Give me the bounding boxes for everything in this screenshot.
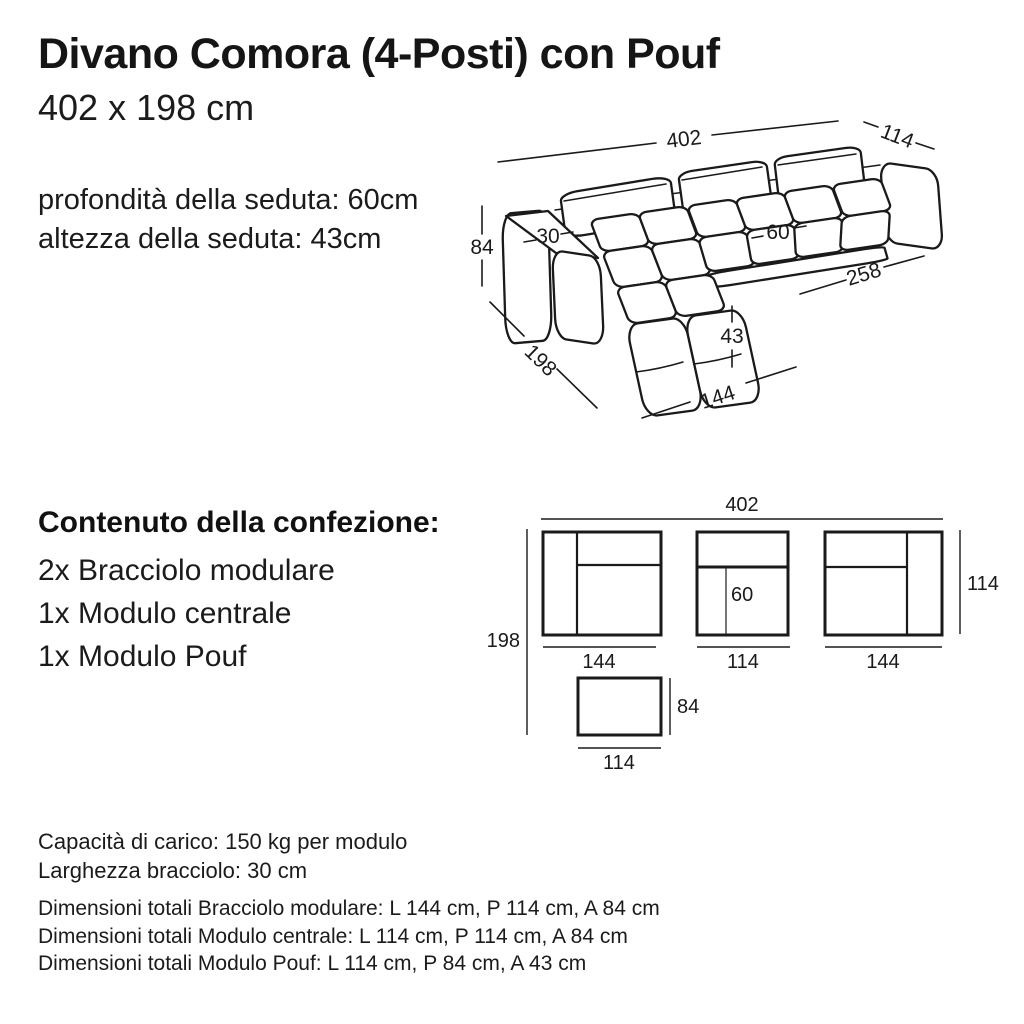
tv-total-depth-label: 198 xyxy=(487,630,520,652)
sofa-perspective-diagram: 402 114 84 30 60 258 198 43 144 xyxy=(460,110,1024,430)
tv-pouf-depth-label: 84 xyxy=(677,696,699,718)
package-item: 2x Bracciolo modulare xyxy=(38,549,440,592)
pouf-top-view: 84 114 xyxy=(578,678,699,774)
dim-seat-depth-label: 60 xyxy=(766,221,789,244)
load-capacity-text: Capacità di carico: 150 kg per modulo xyxy=(38,827,407,856)
dimension-notes: Dimensioni totali Bracciolo modulare: L … xyxy=(38,895,660,978)
tv-seat-depth-label: 60 xyxy=(731,584,753,606)
tv-left-module-width-label: 144 xyxy=(582,651,615,673)
armrest-width-text: Larghezza bracciolo: 30 cm xyxy=(38,856,407,885)
tv-total-width-label: 402 xyxy=(725,494,758,516)
page-title: Divano Comora (4-Posti) con Pouf xyxy=(38,30,720,79)
seat-depth-text: profondità della seduta: 60cm xyxy=(38,181,418,220)
package-heading: Contenuto della confezione: xyxy=(38,501,440,544)
dimension-note: Dimensioni totali Bracciolo modulare: L … xyxy=(38,895,660,923)
dimension-note: Dimensioni totali Modulo Pouf: L 114 cm,… xyxy=(38,950,660,978)
dim-total-depth-label: 114 xyxy=(877,120,917,154)
tv-center-module-width-label: 114 xyxy=(727,651,759,673)
dimension-note: Dimensioni totali Modulo centrale: L 114… xyxy=(38,923,660,951)
package-item: 1x Modulo Pouf xyxy=(38,635,440,678)
seat-height-text: altezza della seduta: 43cm xyxy=(38,220,418,259)
dim-total-width-label: 402 xyxy=(665,126,703,153)
dim-height-label: 84 xyxy=(470,236,494,259)
left-armrest-front xyxy=(552,250,604,345)
center-module-top-view: 60 114 xyxy=(697,532,790,673)
package-contents: Contenuto della confezione: 2x Bracciolo… xyxy=(38,501,440,678)
tv-module-depth-label: 114 xyxy=(967,573,999,595)
tv-right-module-width-label: 144 xyxy=(866,651,899,673)
overall-size-subtitle: 402 x 198 cm xyxy=(38,87,254,129)
right-module-top-view: 144 114 xyxy=(825,530,999,673)
dim-side-depth-label: 198 xyxy=(520,340,561,381)
package-item: 1x Modulo centrale xyxy=(38,592,440,635)
modules-top-view-diagram: 402 198 144 60 114 144 114 xyxy=(490,490,1024,780)
left-module-top-view: 144 xyxy=(543,532,661,673)
dim-pouf-height-label: 43 xyxy=(720,325,743,348)
product-spec-page: Divano Comora (4-Posti) con Pouf 402 x 1… xyxy=(0,0,1024,1024)
capacity-specs: Capacità di carico: 150 kg per modulo La… xyxy=(38,827,407,885)
dim-armrest-label: 30 xyxy=(536,225,559,248)
seat-specs: profondità della seduta: 60cm altezza de… xyxy=(38,181,418,259)
tv-pouf-width-label: 114 xyxy=(603,752,635,774)
